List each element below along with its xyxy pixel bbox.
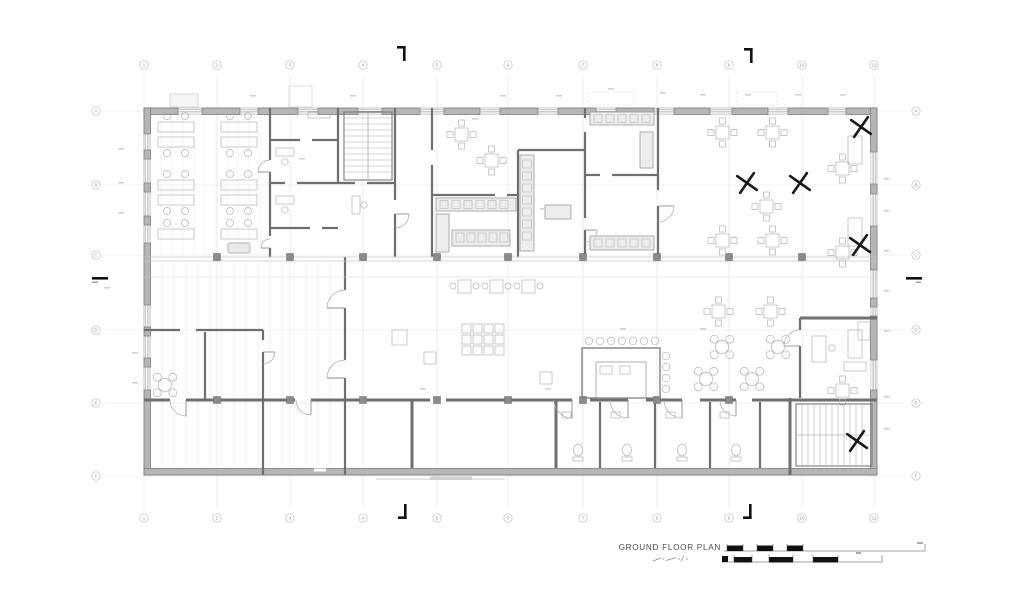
canopy (170, 94, 198, 107)
annotation-mark (545, 388, 551, 390)
chair (828, 250, 834, 256)
bench (848, 136, 862, 164)
wall-segment (871, 298, 878, 307)
grid-row-label: F (915, 474, 918, 479)
desk (221, 122, 257, 132)
kitchen-counter (436, 214, 449, 252)
chair (607, 337, 615, 345)
chair (245, 113, 252, 120)
chair (731, 238, 737, 244)
chair (720, 118, 726, 124)
grid-column-label: 11 (872, 63, 877, 68)
desk (158, 229, 194, 239)
chair (781, 130, 787, 136)
chair (779, 309, 785, 315)
stacked-chair (484, 324, 493, 333)
column (360, 397, 367, 404)
desk (221, 137, 257, 147)
scale-bar-segment (722, 556, 728, 562)
wall-segment (732, 108, 768, 115)
chair (477, 158, 483, 164)
chair (164, 150, 171, 157)
desk (352, 196, 360, 214)
wall-segment (144, 183, 151, 192)
table (392, 330, 407, 345)
chair (708, 130, 714, 136)
chair (227, 220, 234, 227)
table (458, 280, 471, 293)
chair (770, 141, 776, 147)
stacked-chair (495, 335, 504, 344)
chair (704, 309, 710, 315)
chair (182, 113, 189, 120)
table (455, 128, 468, 141)
scale-bar-segment (727, 546, 743, 552)
scale-note-mark (666, 558, 676, 561)
scale-bar-segment (757, 546, 773, 552)
chair (851, 166, 857, 172)
ceiling-fan-icon (859, 125, 863, 129)
chair (756, 309, 762, 315)
annotation-mark (660, 92, 666, 94)
annotation-mark (132, 382, 138, 384)
canopy-dashed (588, 92, 634, 105)
chair (840, 154, 846, 160)
chair (840, 376, 846, 382)
entry-step (430, 477, 472, 481)
annotation-mark (840, 94, 846, 96)
annotation-mark (556, 95, 562, 97)
kitchen-counter (452, 230, 510, 246)
chair (720, 226, 726, 232)
chair (829, 345, 835, 351)
chair (764, 215, 770, 221)
table (836, 162, 849, 175)
wall-segment (382, 108, 420, 115)
chair (629, 337, 637, 345)
desk (276, 148, 294, 156)
table (766, 126, 779, 139)
chair (164, 171, 171, 178)
wall-segment (144, 469, 877, 476)
chair (245, 150, 252, 157)
scale-note-mark (681, 556, 684, 561)
desk (844, 362, 866, 371)
toilet-tank (622, 457, 632, 461)
section-marker (92, 282, 98, 283)
round-table (159, 379, 172, 392)
stacked-chair (462, 335, 471, 344)
ceiling-fan-icon (798, 181, 802, 185)
chair (585, 337, 593, 345)
wall-segment (500, 108, 538, 115)
wall-segment (144, 358, 151, 367)
section-marker (916, 282, 921, 283)
column (726, 397, 733, 404)
grid-row-label: D (94, 328, 97, 333)
grid-row-label: E (915, 401, 918, 406)
chair (245, 220, 252, 227)
chair (726, 335, 734, 343)
wall-segment (871, 316, 878, 360)
window-dimension-label: 2m (884, 328, 890, 333)
scale-bar-end-mark (856, 552, 861, 554)
table (522, 280, 535, 293)
chair (768, 320, 774, 326)
chair (182, 150, 189, 157)
chair (710, 335, 718, 343)
toilet-tank (677, 457, 687, 461)
scale-bar-segment (787, 546, 803, 552)
chair (840, 177, 846, 183)
chair (782, 351, 790, 359)
grid-row-label: A (95, 109, 98, 114)
grid-row-label: B (915, 183, 918, 188)
kitchen-counter (545, 205, 571, 219)
annotation-mark (118, 212, 124, 214)
scale-note-mark (653, 558, 661, 561)
chair (447, 132, 453, 138)
desk (158, 195, 194, 205)
wall-segment (871, 226, 878, 270)
wall-segment (788, 108, 828, 115)
round-table (700, 373, 713, 386)
desk (812, 336, 826, 362)
door-arc (261, 239, 270, 248)
chair (752, 204, 758, 210)
chair (758, 130, 764, 136)
toilet-tank (573, 457, 583, 461)
window-dimension-label: 2m (884, 248, 890, 253)
drawing-title: GROUND FLOOR PLAN (619, 543, 721, 552)
floor-plan-drawing: 11223344556677889910101111AABBCCDDEEFF 2… (0, 0, 1024, 615)
kitchen-counter (590, 236, 654, 250)
chair (756, 383, 764, 391)
column (287, 254, 294, 261)
chair (662, 352, 670, 360)
column (434, 397, 441, 404)
annotation-mark (132, 352, 138, 354)
column (580, 254, 587, 261)
annotation-mark (118, 148, 124, 150)
column (214, 397, 221, 404)
scale-note-mark (678, 558, 679, 559)
grid-row-label: E (95, 401, 98, 406)
grid-row-label: C (914, 253, 917, 258)
annotation-mark (118, 182, 124, 184)
chair (473, 283, 479, 289)
chair (450, 283, 456, 289)
kitchen-counter (520, 155, 534, 251)
grid-row-label: D (914, 328, 917, 333)
chair (640, 337, 648, 345)
exterior-wall-face (144, 108, 877, 475)
round-table (772, 341, 785, 354)
bottom-wall-notch (314, 469, 326, 472)
stacked-chair (473, 346, 482, 355)
canopy (289, 86, 312, 107)
wall-segment (444, 108, 480, 115)
chair (662, 374, 670, 382)
column (434, 254, 441, 261)
title-block: GROUND FLOOR PLAN (619, 542, 925, 563)
chair (828, 388, 834, 394)
door-arc (296, 400, 311, 415)
chair (740, 367, 748, 375)
annotation-layer: 2m2m2m2m2m2m2m (92, 46, 922, 519)
section-marker (743, 516, 752, 519)
annotation-mark (745, 94, 751, 96)
table (764, 305, 777, 318)
door-arc (263, 352, 275, 364)
chair (716, 320, 722, 326)
chair (694, 383, 702, 391)
chair (840, 238, 846, 244)
bar-equipment (620, 366, 630, 374)
chair (694, 367, 702, 375)
annotation-mark (472, 118, 478, 120)
window-dimension-label: 2m (884, 394, 890, 399)
chair (596, 337, 604, 345)
chair (182, 208, 189, 215)
annotation-mark (250, 95, 256, 97)
window-dimension-label: 2m (884, 176, 890, 181)
bar-counter (582, 348, 660, 398)
drawing-sheet: 11223344556677889910101111AABBCCDDEEFF 2… (0, 0, 1024, 615)
chair (756, 367, 764, 375)
round-table (746, 373, 759, 386)
scale-note-mark (686, 558, 687, 559)
section-marker (744, 48, 753, 51)
chair (758, 238, 764, 244)
desk (158, 122, 194, 132)
chair (775, 204, 781, 210)
annotation-mark (420, 388, 426, 390)
chair (828, 166, 834, 172)
table (424, 352, 436, 364)
ceiling-fan-icon (855, 439, 859, 443)
scale-bar-end-mark (917, 542, 923, 544)
stacked-chair (484, 335, 493, 344)
door-arc (170, 400, 186, 416)
annotation-mark (350, 95, 356, 97)
chair (720, 141, 726, 147)
annotation-mark (700, 328, 706, 330)
table (490, 280, 503, 293)
table (712, 305, 725, 318)
annotation-mark (500, 95, 506, 97)
chair (710, 351, 718, 359)
cabinet (858, 322, 870, 340)
grid-row-label: B (95, 183, 98, 188)
chair (153, 389, 161, 397)
wall-segment (144, 150, 151, 159)
scale-bar-segment (813, 557, 838, 563)
scale-note-mark (662, 558, 663, 559)
wall-segment (144, 216, 151, 225)
annotation-mark (700, 94, 706, 96)
chair (727, 309, 733, 315)
chair (662, 385, 670, 393)
sink (720, 412, 729, 418)
chair (227, 171, 234, 178)
printer-table (228, 243, 250, 253)
chair (537, 283, 543, 289)
stacked-chair (473, 324, 482, 333)
annotation-mark (795, 94, 801, 96)
chair (716, 297, 722, 303)
chair (227, 208, 234, 215)
building-walls-layer (144, 86, 877, 480)
chair (740, 383, 748, 391)
chair (708, 238, 714, 244)
table (766, 234, 779, 247)
grid-row-label: F (95, 474, 98, 479)
chair (651, 337, 659, 345)
chair (851, 388, 857, 394)
wall-segment (144, 108, 151, 134)
table (540, 372, 552, 384)
window-dimension-label: 2m (884, 426, 890, 431)
column (799, 254, 806, 261)
chair (182, 171, 189, 178)
desk (221, 195, 257, 205)
column (726, 254, 733, 261)
wall-segment (871, 108, 878, 152)
ceiling-fan-icon (745, 181, 749, 185)
chair (164, 220, 171, 227)
chair (169, 389, 177, 397)
chair (770, 118, 776, 124)
wall-segment (144, 327, 151, 336)
column (505, 254, 512, 261)
chair (770, 226, 776, 232)
chair (662, 363, 670, 371)
column (214, 254, 221, 261)
grid-column-label: 10 (800, 516, 805, 521)
chair (182, 220, 189, 227)
chair (764, 192, 770, 198)
toilet (623, 444, 632, 456)
ceiling-fan-icon (858, 243, 862, 247)
column (654, 254, 661, 261)
chair (459, 120, 465, 126)
chair (489, 169, 495, 175)
chair (840, 261, 846, 267)
section-marker (398, 516, 407, 519)
annotation-mark (299, 158, 305, 160)
chair (766, 351, 774, 359)
toilet (732, 444, 741, 456)
chair (245, 171, 252, 178)
kitchen-counter (640, 132, 653, 168)
chair (710, 383, 718, 391)
bench (848, 330, 862, 358)
desk (158, 137, 194, 147)
annotation-mark (104, 287, 110, 289)
column (505, 397, 512, 404)
table (716, 126, 729, 139)
stacked-chair (462, 346, 471, 355)
grid-column-label: 10 (800, 63, 805, 68)
annotation-mark (608, 88, 614, 90)
chair (153, 373, 161, 381)
grid-row-label: A (915, 109, 918, 114)
section-marker (906, 277, 922, 280)
annotation-mark (540, 208, 546, 210)
stacked-chair (462, 324, 471, 333)
scale-bar-segment (769, 557, 793, 563)
chair (470, 132, 476, 138)
toilet (678, 444, 687, 456)
chair (169, 373, 177, 381)
wall-segment (871, 184, 878, 194)
round-table (716, 341, 729, 354)
grid-column-label: 11 (872, 516, 877, 521)
chair (781, 238, 787, 244)
wall-segment (144, 243, 151, 305)
chair (618, 337, 626, 345)
chair (245, 208, 252, 215)
chair (282, 207, 288, 213)
chair (361, 202, 367, 208)
chair (726, 351, 734, 359)
stacked-chair (473, 335, 482, 344)
chair (489, 146, 495, 152)
desk (276, 196, 294, 204)
table (716, 234, 729, 247)
wall-segment (202, 108, 240, 115)
column (287, 397, 294, 404)
toilet-tank (731, 457, 741, 461)
table (760, 200, 773, 213)
section-marker (397, 46, 406, 49)
chair (482, 283, 488, 289)
canopy-dashed (737, 92, 777, 105)
door-arc (395, 214, 409, 228)
bar-inner (596, 362, 646, 398)
window-dimension-label: 2m (884, 288, 890, 293)
door-arc (784, 330, 800, 346)
kitchen-counter (590, 112, 654, 125)
chair (514, 283, 520, 289)
bar-equipment (600, 366, 612, 374)
window-dimension-label: 2m (884, 208, 890, 213)
toilet (574, 444, 583, 456)
door-arc (658, 206, 674, 222)
chair (731, 130, 737, 136)
wall-segment (258, 108, 298, 115)
grid-row-label: C (94, 253, 97, 258)
table (485, 154, 498, 167)
wall-segment (144, 390, 151, 475)
stacked-chair (484, 346, 493, 355)
scale-bar-segment (734, 557, 752, 563)
chair (710, 367, 718, 375)
section-marker (92, 277, 108, 280)
stacked-chair (495, 346, 504, 355)
chair (500, 158, 506, 164)
chair (768, 297, 774, 303)
chair (164, 208, 171, 215)
chair (227, 150, 234, 157)
sink (666, 412, 675, 418)
desk (221, 229, 257, 239)
chair (720, 249, 726, 255)
column (360, 254, 367, 261)
annotation-mark (620, 328, 626, 330)
chair (459, 143, 465, 149)
